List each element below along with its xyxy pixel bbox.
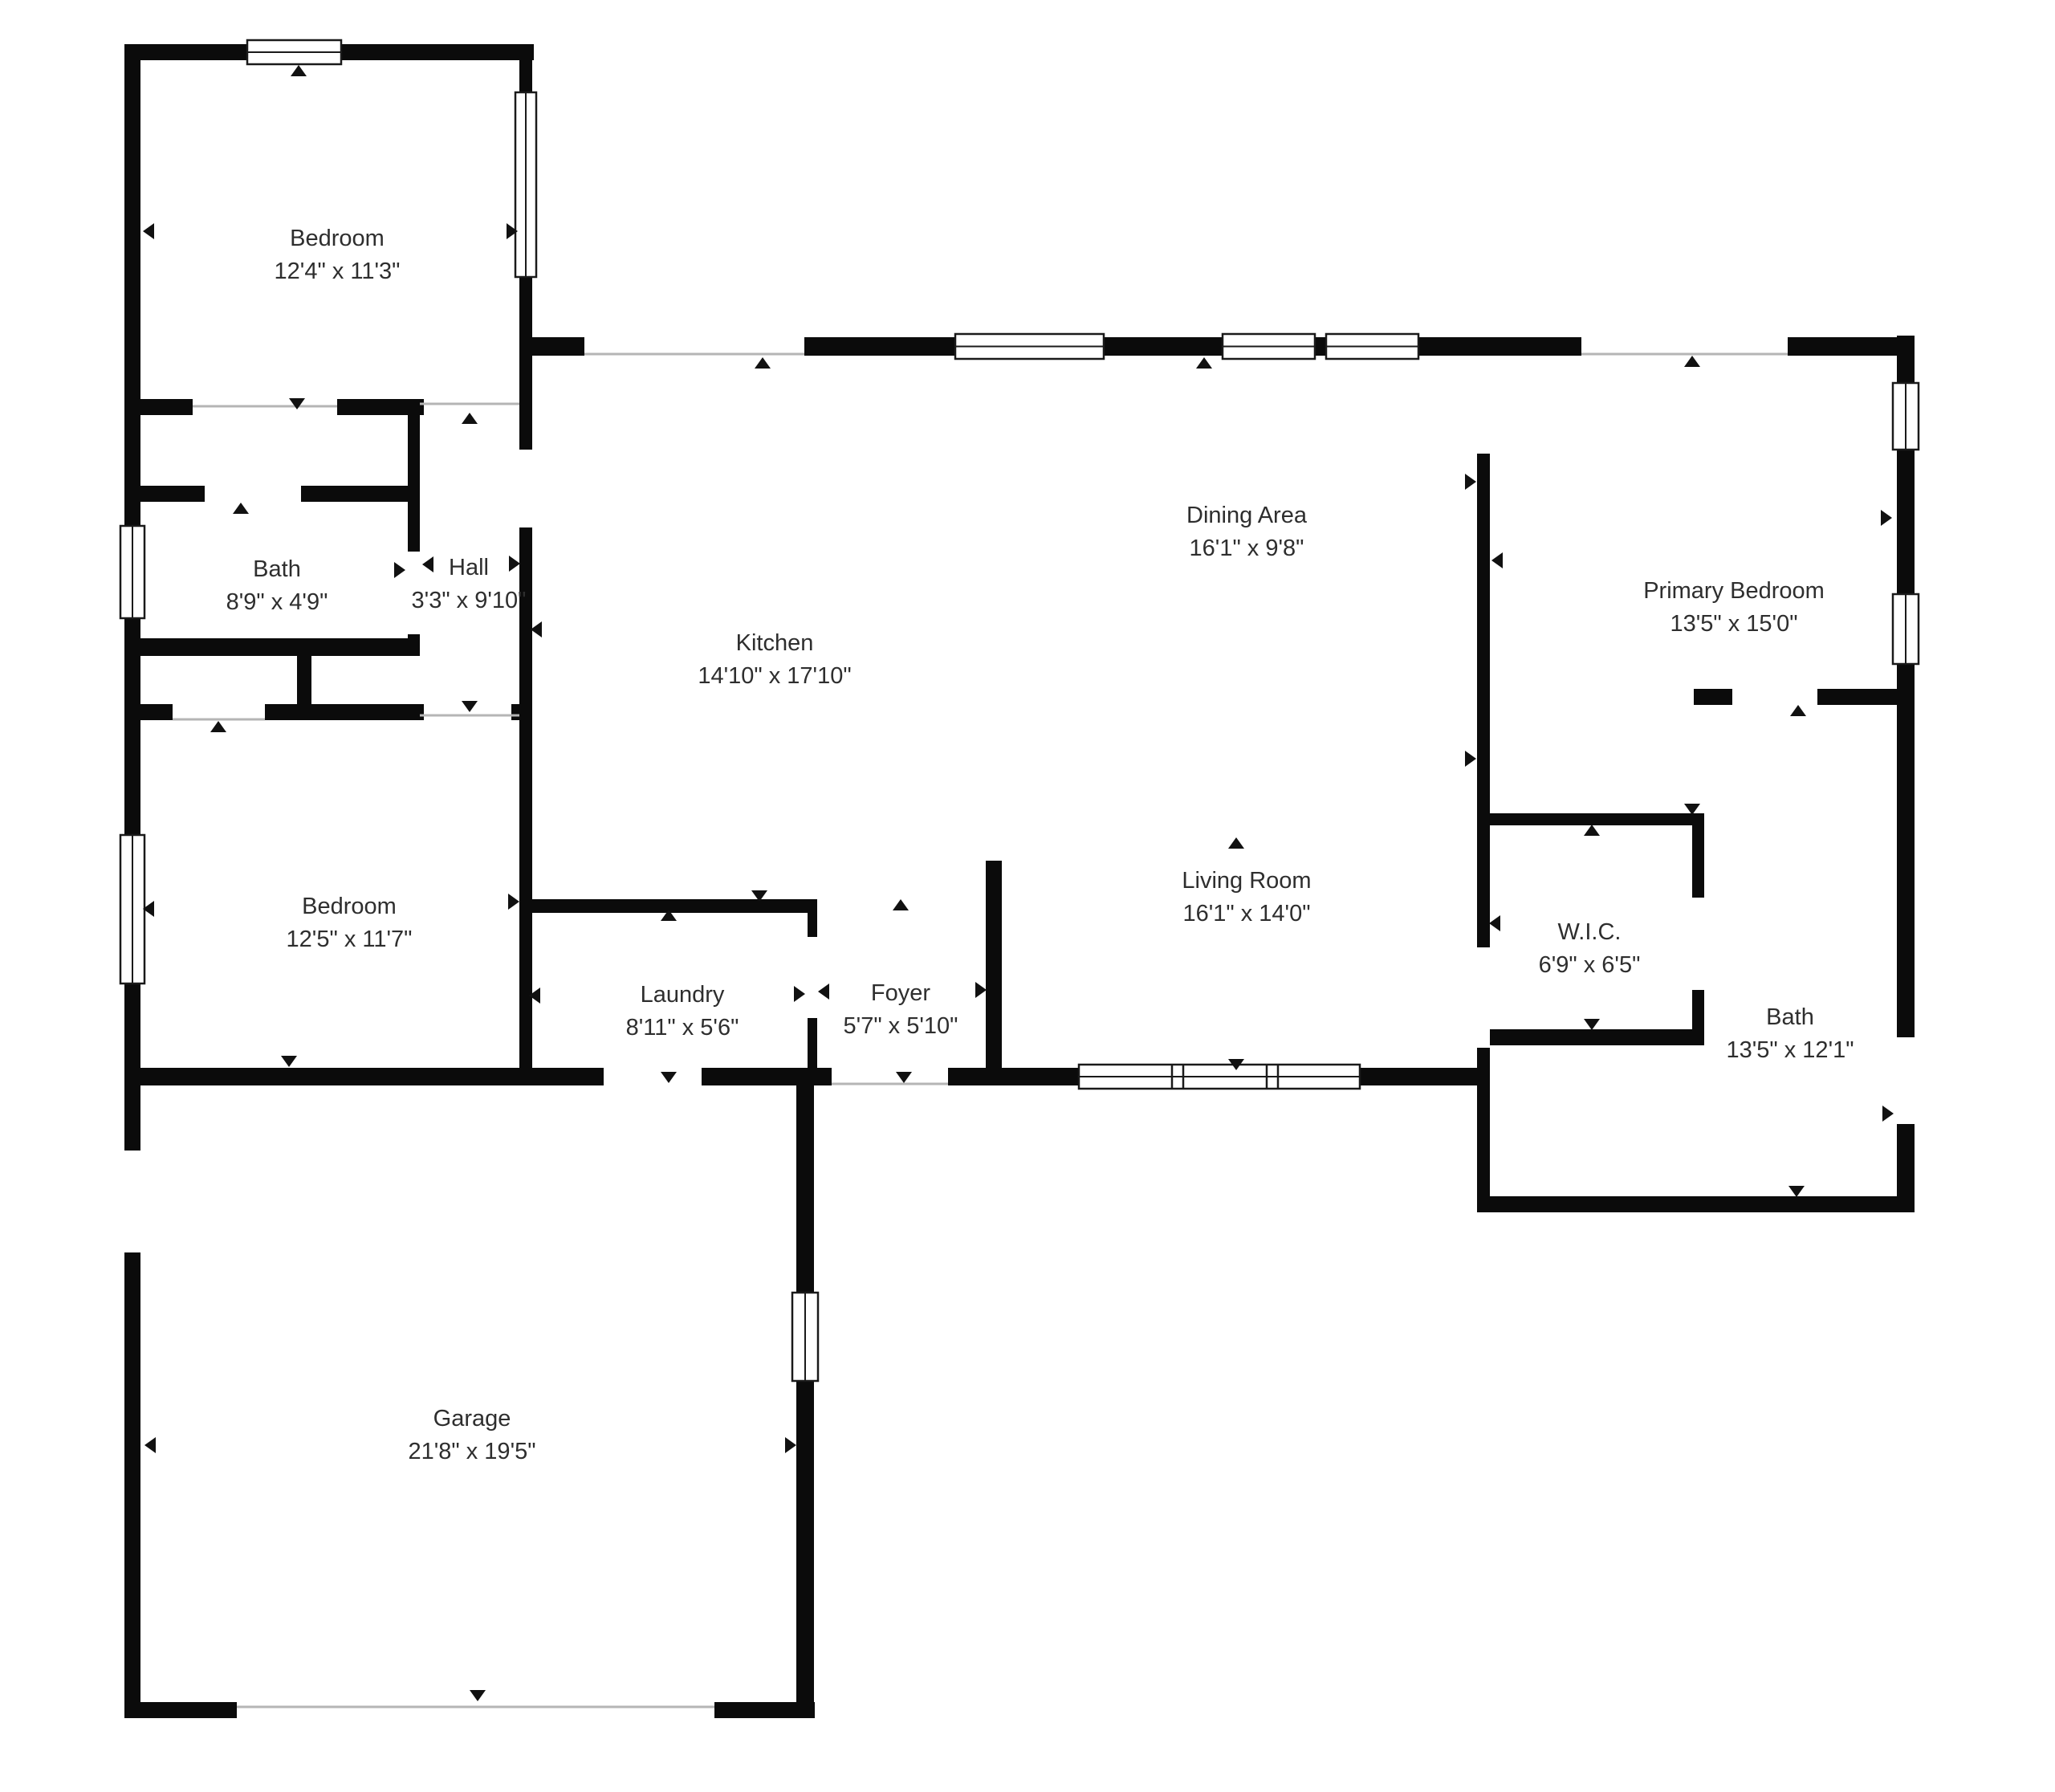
door-opening — [1477, 947, 1490, 1048]
door-opening — [1692, 898, 1704, 990]
door-arrow-icon — [1684, 804, 1700, 815]
door-arrows — [143, 65, 1894, 1701]
wall-segment — [511, 704, 532, 720]
door-arrow-icon — [531, 621, 542, 637]
wall-segment — [297, 656, 311, 707]
walls — [124, 44, 1915, 1718]
wall-segment — [124, 638, 419, 656]
door-arrow-icon — [1465, 751, 1476, 767]
wall-segment — [1694, 689, 1732, 705]
wall-segment — [1315, 337, 1326, 356]
wall-segment — [265, 704, 424, 720]
floor-plan-canvas: Bedroom 12'4" x 11'3" Bath 8'9" x 4'9" H… — [0, 0, 2055, 1792]
door-arrow-icon — [785, 1437, 796, 1453]
wall-segment — [1489, 813, 1704, 825]
floorplan-drawing — [0, 0, 2055, 1792]
window — [1079, 1065, 1360, 1089]
door-arrow-icon — [1465, 474, 1476, 490]
door-arrow-icon — [1790, 705, 1806, 716]
door-arrow-icon — [1684, 356, 1700, 367]
window — [1893, 383, 1919, 450]
door-arrow-icon — [508, 894, 519, 910]
door-arrow-icon — [233, 503, 249, 514]
wall-segment — [804, 337, 955, 356]
door-opening — [519, 450, 532, 527]
window — [247, 40, 341, 64]
door-arrow-icon — [509, 556, 520, 572]
door-arrow-icon — [755, 357, 771, 369]
door-arrow-icon — [1489, 915, 1500, 931]
wall-segment — [1489, 1196, 1915, 1212]
door-opening — [1477, 356, 1490, 454]
wall-segment — [301, 486, 409, 502]
door-arrow-icon — [394, 562, 405, 578]
window — [1326, 334, 1418, 359]
door-arrow-icon — [422, 556, 433, 572]
door-arrow-icon — [462, 413, 478, 424]
door-arrow-icon — [794, 986, 805, 1002]
window — [1223, 334, 1315, 359]
door-opening — [808, 937, 817, 1018]
wall-segment — [124, 704, 173, 720]
wall-segment — [124, 399, 193, 415]
wall-segment — [337, 399, 424, 415]
door-arrow-icon — [896, 1072, 912, 1083]
door-arrow-icon — [144, 1437, 156, 1453]
wall-segment — [796, 1085, 814, 1718]
wall-segment — [531, 337, 584, 356]
wall-segment — [124, 486, 205, 502]
door-opening — [408, 552, 420, 634]
wall-segment — [986, 861, 1002, 1085]
door-arrow-icon — [661, 1072, 677, 1083]
door-arrow-icon — [289, 398, 305, 409]
window — [515, 92, 536, 277]
door-arrow-icon — [893, 899, 909, 910]
wall-segment — [1418, 337, 1581, 356]
window — [955, 334, 1104, 359]
door-opening — [124, 1151, 140, 1252]
wall-segment — [1817, 689, 1897, 705]
door-arrow-icon — [462, 701, 478, 712]
wall-segment — [702, 1068, 832, 1085]
door-arrow-icon — [1881, 510, 1892, 526]
door-arrow-icon — [1196, 357, 1212, 369]
door-arrow-icon — [210, 721, 226, 732]
wall-segment — [714, 1702, 815, 1718]
door-arrow-icon — [818, 984, 829, 1000]
window — [1893, 594, 1919, 664]
door-arrow-icon — [975, 982, 987, 998]
door-arrow-icon — [1584, 1019, 1600, 1030]
door-arrow-icon — [1788, 1186, 1805, 1197]
door-arrow-icon — [143, 223, 154, 239]
door-arrow-icon — [470, 1690, 486, 1701]
door-arrow-icon — [281, 1056, 297, 1067]
door-arrow-icon — [1491, 552, 1503, 568]
wall-segment — [124, 1068, 604, 1085]
wall-segment — [1489, 1029, 1704, 1045]
door-arrow-icon — [1228, 837, 1244, 849]
door-arrow-icon — [1584, 825, 1600, 836]
window — [120, 835, 144, 984]
window — [120, 526, 144, 618]
wall-segment — [1788, 337, 1915, 356]
door-opening — [1897, 1037, 1915, 1124]
door-arrow-icon — [1882, 1106, 1894, 1122]
wall-segment — [1104, 337, 1223, 356]
wall-segment — [124, 1702, 237, 1718]
door-arrow-icon — [291, 65, 307, 76]
window — [792, 1293, 818, 1381]
